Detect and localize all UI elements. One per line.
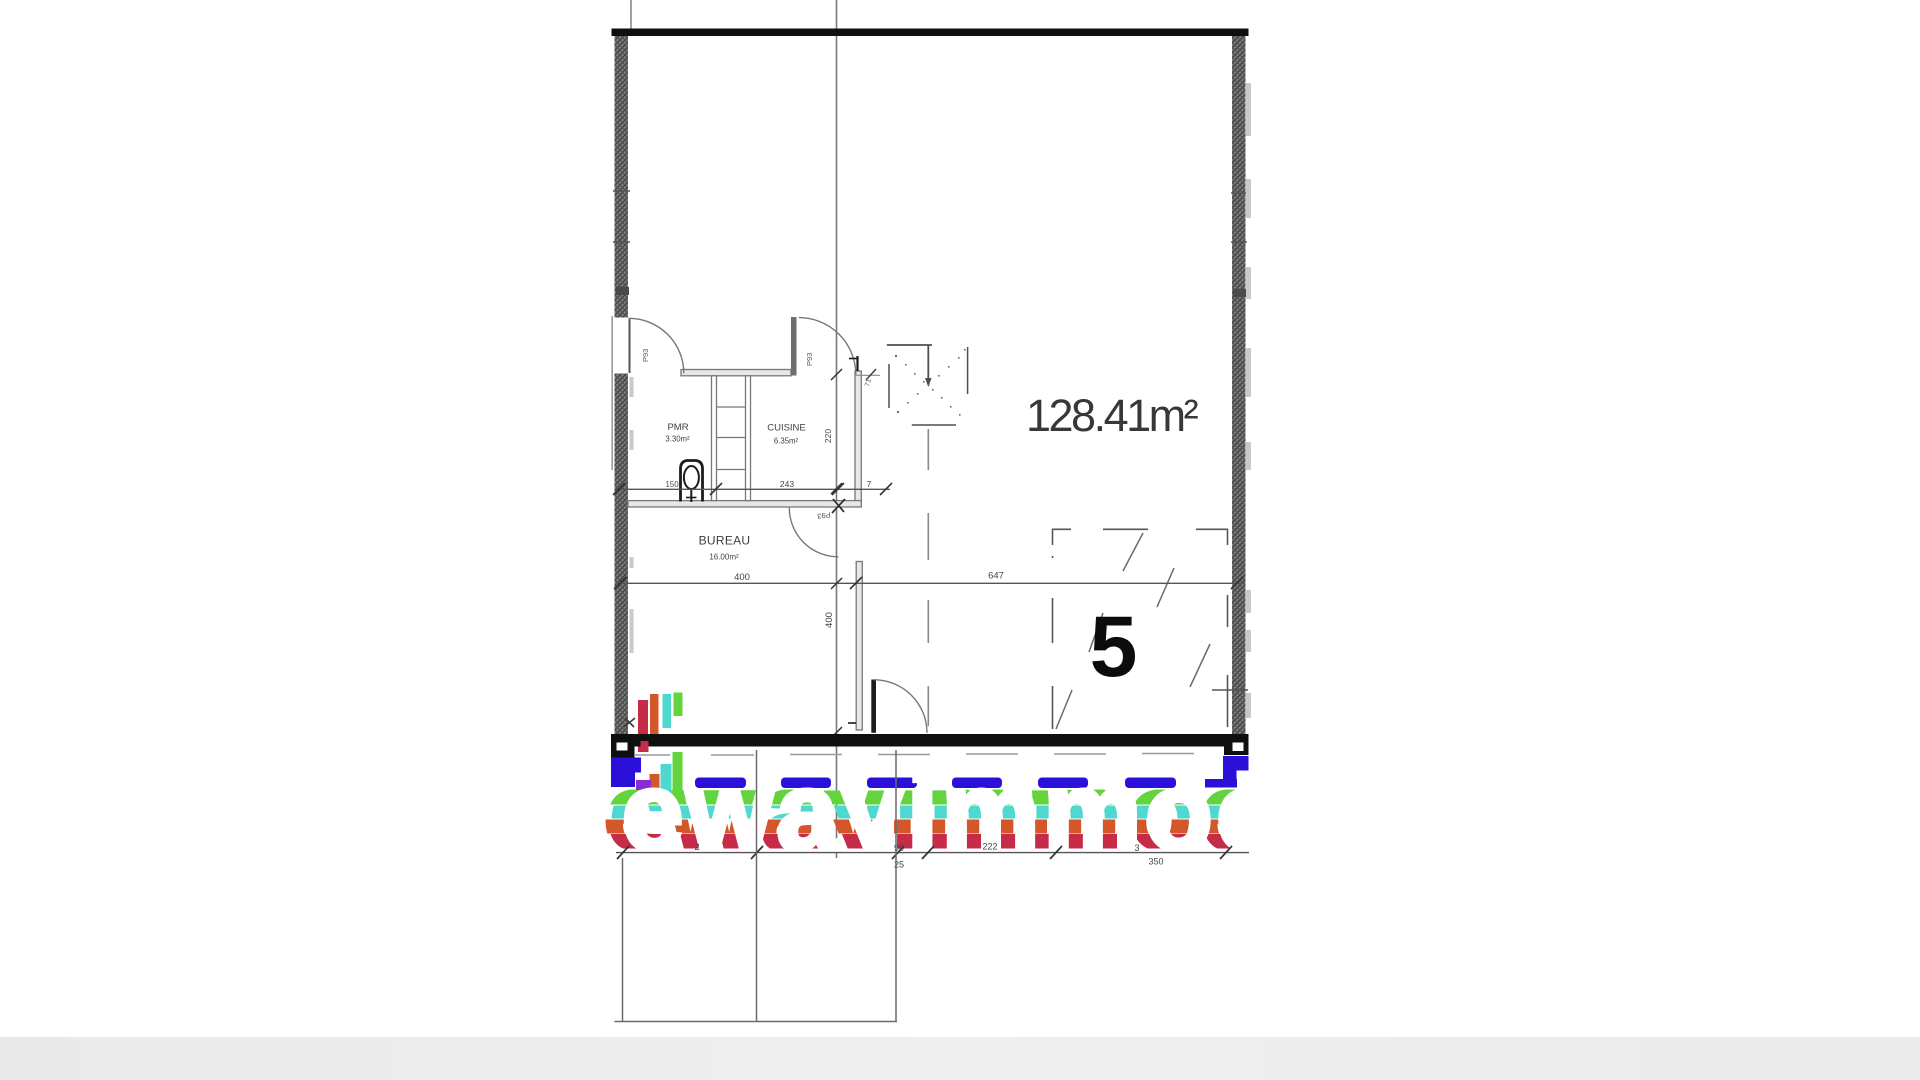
svg-text:BUREAU: BUREAU	[699, 534, 751, 548]
svg-text:P93: P93	[817, 510, 831, 521]
svg-text:3.30m²: 3.30m²	[665, 435, 690, 444]
svg-text:220: 220	[823, 429, 833, 443]
svg-text:128.41m²: 128.41m²	[1026, 390, 1199, 441]
svg-text:16.00m²: 16.00m²	[709, 553, 739, 562]
svg-text:400: 400	[734, 572, 750, 583]
svg-text:647: 647	[988, 571, 1004, 582]
svg-text:3: 3	[1134, 843, 1139, 853]
svg-text:150: 150	[665, 480, 679, 489]
svg-text:7: 7	[867, 479, 872, 489]
svg-text:350: 350	[1148, 857, 1163, 867]
svg-text:P93: P93	[641, 349, 650, 362]
svg-text:CUISINE: CUISINE	[767, 423, 806, 434]
svg-text:2: 2	[694, 842, 699, 852]
svg-text:6.35m²: 6.35m²	[774, 437, 799, 446]
svg-text:P93: P93	[805, 353, 814, 366]
svg-text:243: 243	[780, 479, 794, 489]
svg-text:400: 400	[824, 612, 835, 628]
svg-text:PMR: PMR	[667, 422, 688, 433]
svg-text:222: 222	[982, 842, 997, 852]
svg-text:5: 5	[1090, 599, 1138, 695]
svg-text:ewayimmoe: ewayimmoe	[622, 751, 1282, 874]
